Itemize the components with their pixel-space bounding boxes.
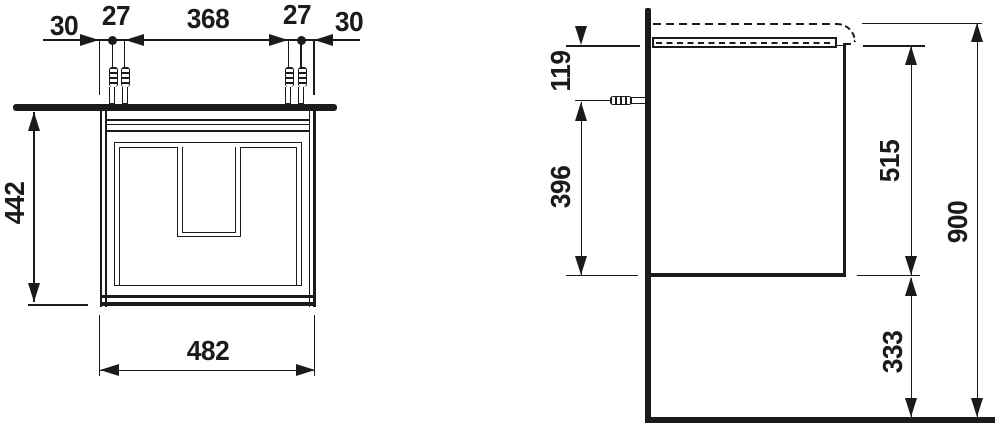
extension-line-cabinet-bottom bbox=[566, 275, 638, 276]
extension-line-cabinet-top bbox=[566, 45, 640, 46]
dimension-line-333 bbox=[911, 278, 912, 418]
extension-line-bottom bbox=[28, 304, 88, 305]
cabinet-bottom-rail bbox=[100, 295, 316, 298]
arrowhead-right bbox=[296, 364, 315, 376]
dim-label-27-left: 27 bbox=[102, 2, 130, 30]
arrowhead-up bbox=[28, 112, 40, 131]
floor bbox=[645, 417, 995, 423]
cabinet-top-rail bbox=[107, 124, 309, 126]
cabinet-top-rail bbox=[107, 130, 309, 132]
dimension-dot bbox=[108, 36, 117, 45]
cabinet-bottom-edge bbox=[100, 302, 316, 306]
dim-label-442: 442 bbox=[1, 182, 29, 225]
dim-label-396: 396 bbox=[547, 166, 575, 209]
arrowhead-up bbox=[971, 23, 983, 42]
dimension-line-515 bbox=[911, 47, 912, 275]
hanger-bolt-icon bbox=[121, 67, 128, 104]
technical-drawing-canvas: 30 27 368 27 30 442 482 bbox=[0, 0, 1000, 428]
dimension-dot bbox=[297, 36, 306, 45]
height-dimension-line bbox=[33, 112, 34, 302]
bolt-thread bbox=[109, 67, 118, 87]
extension-line-total-top bbox=[862, 23, 982, 24]
arrowhead-down bbox=[575, 26, 587, 45]
dim-label-368: 368 bbox=[187, 5, 230, 33]
dim-label-515: 515 bbox=[876, 140, 904, 183]
bolt-shaft bbox=[122, 87, 128, 104]
cabinet-top-rail bbox=[107, 119, 309, 121]
dim-label-119: 119 bbox=[547, 50, 575, 91]
washbasin-dashed-corner bbox=[836, 23, 856, 42]
dim-label-27-right: 27 bbox=[283, 1, 311, 29]
wall bbox=[645, 8, 651, 421]
arrowhead-down bbox=[905, 256, 917, 275]
arrowhead-down bbox=[28, 283, 40, 302]
cabinet-bottom-panel bbox=[648, 273, 846, 278]
bolt-thread bbox=[121, 67, 130, 87]
mounting-screw-thread bbox=[610, 96, 632, 105]
washbasin-dashed-outline bbox=[653, 23, 838, 25]
arrowhead-left bbox=[314, 34, 333, 46]
arrowhead-up bbox=[575, 102, 587, 121]
cabinet-front-face bbox=[843, 46, 846, 276]
arrowhead-down bbox=[971, 398, 983, 417]
extension-line-right-edge bbox=[313, 40, 314, 95]
arrowhead-up bbox=[905, 277, 917, 296]
width-dimension-line bbox=[100, 370, 315, 371]
cabinet-side-panel-left-inner bbox=[105, 111, 107, 307]
arrowhead-left bbox=[125, 34, 144, 46]
arrowhead-down bbox=[575, 256, 587, 275]
bolt-thread bbox=[285, 67, 294, 87]
handle-cutout-inner bbox=[182, 147, 237, 233]
mounting-screw-shaft bbox=[631, 97, 646, 105]
arrowhead-down bbox=[905, 398, 917, 417]
bolt-shaft bbox=[109, 87, 115, 104]
dim-label-482: 482 bbox=[187, 337, 230, 365]
cabinet-top-dashed-line bbox=[656, 42, 832, 44]
arrowhead-left bbox=[100, 364, 119, 376]
bolt-shaft bbox=[285, 87, 291, 104]
dim-label-333: 333 bbox=[879, 331, 907, 374]
extension-line-left-edge bbox=[99, 40, 100, 95]
cabinet-side-panel-right bbox=[313, 111, 316, 307]
dimension-line-900 bbox=[977, 23, 978, 417]
dim-label-30-left: 30 bbox=[50, 12, 78, 40]
cabinet-side-panel-right-inner bbox=[309, 111, 311, 307]
hanger-bolt-icon bbox=[109, 67, 116, 104]
bolt-thread bbox=[298, 67, 307, 87]
arrowhead-right bbox=[269, 34, 288, 46]
extension-line-bolt-3 bbox=[288, 40, 289, 67]
dim-label-30-right: 30 bbox=[335, 8, 363, 36]
hanger-bolt-icon bbox=[285, 67, 292, 104]
arrowhead-up bbox=[905, 46, 917, 65]
hanger-bolt-icon bbox=[298, 67, 305, 104]
dimension-line-396 bbox=[581, 102, 582, 275]
dim-label-900: 900 bbox=[944, 201, 972, 244]
cabinet-side-panel-left bbox=[100, 111, 103, 307]
extension-line bbox=[857, 275, 920, 276]
bolt-shaft bbox=[298, 87, 304, 104]
countertop bbox=[13, 104, 337, 111]
arrowhead-right bbox=[80, 34, 99, 46]
